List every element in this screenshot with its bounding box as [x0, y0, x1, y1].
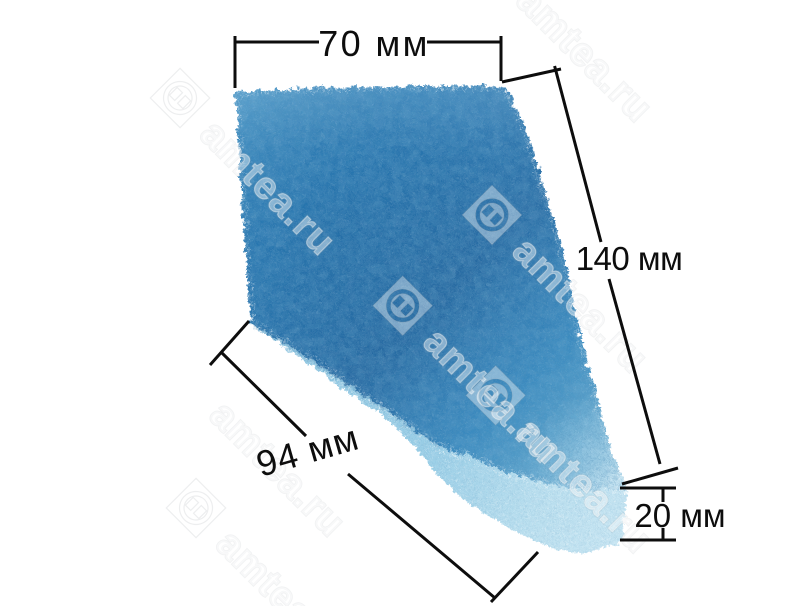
- svg-text:140 мм: 140 мм: [576, 240, 683, 277]
- svg-text:70 мм: 70 мм: [318, 23, 430, 64]
- svg-text:20 мм: 20 мм: [634, 497, 725, 534]
